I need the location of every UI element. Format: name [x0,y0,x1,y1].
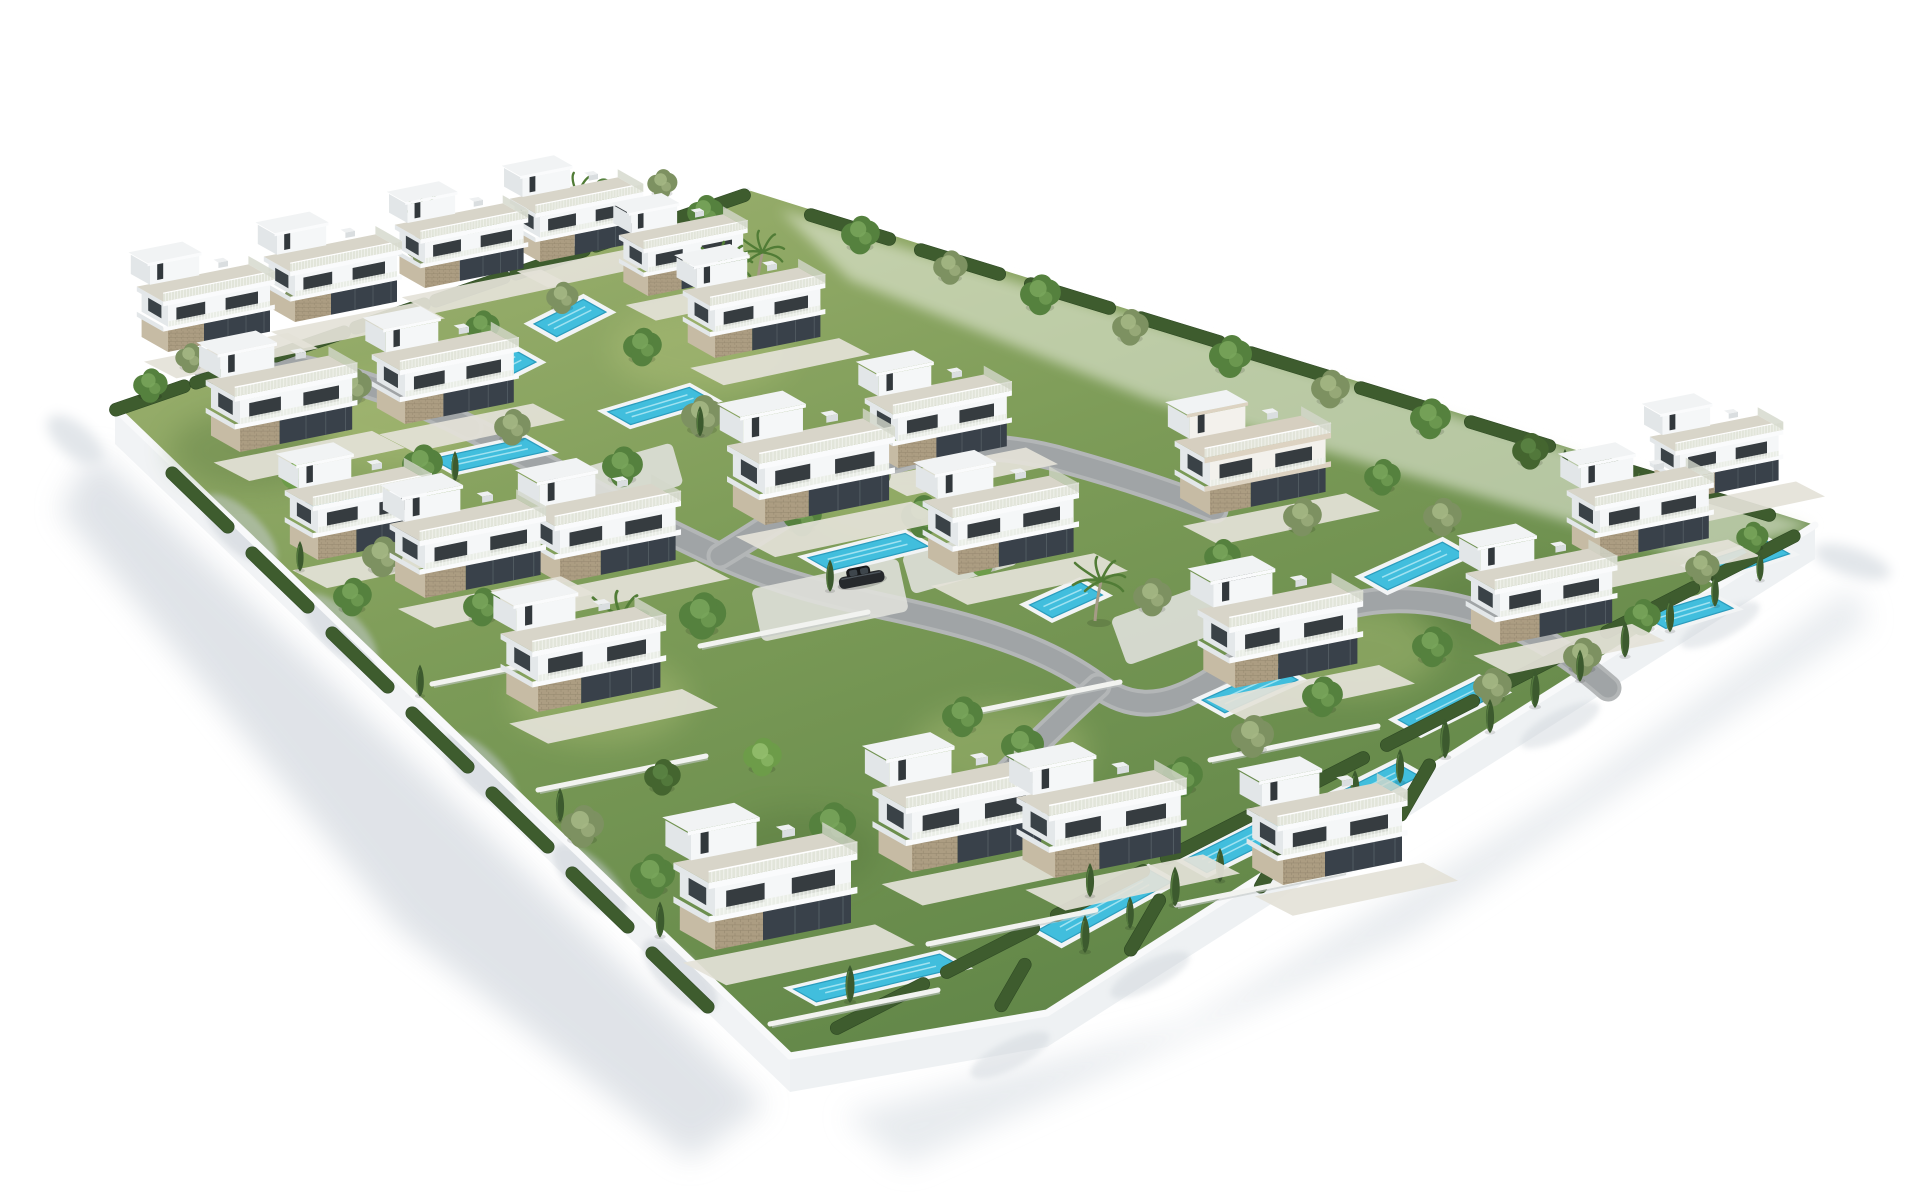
aerial-render-canvas [0,0,1920,1200]
villa-development-render [0,0,1920,1200]
